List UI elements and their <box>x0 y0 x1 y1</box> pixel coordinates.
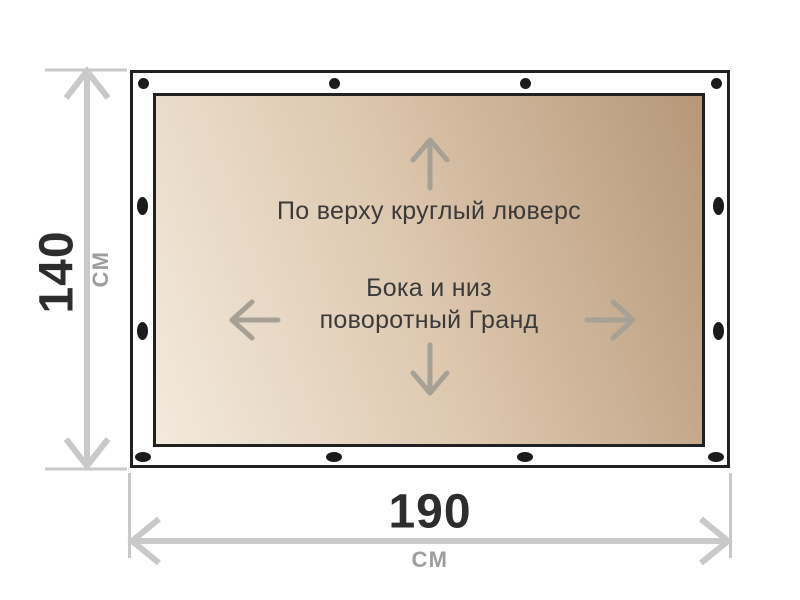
banner-fabric: По верху круглый люверс Бока и низ повор… <box>153 93 705 447</box>
grommet-dot-icon <box>326 452 342 462</box>
height-unit: СМ <box>88 251 114 288</box>
arrow-right-icon <box>583 298 639 342</box>
top-fastening-note: По верху круглый люверс <box>156 197 702 225</box>
height-value: 140 <box>30 230 85 313</box>
grommet-dot-icon <box>138 78 149 89</box>
banner-outline: По верху круглый люверс Бока и низ повор… <box>130 70 730 468</box>
grommet-dot-icon <box>329 78 340 89</box>
grommet-dot-icon <box>137 197 148 215</box>
arrow-down-icon <box>408 341 452 397</box>
grommet-dot-icon <box>520 78 531 89</box>
width-value: 190 <box>388 485 471 540</box>
banner-dimension-diagram: 140 СМ По верху круглый люверс <box>0 0 800 600</box>
grommet-dot-icon <box>137 322 148 340</box>
grommet-dot-icon <box>713 197 724 215</box>
grommet-dot-icon <box>711 78 722 89</box>
grommet-dot-icon <box>135 452 151 462</box>
grommet-dot-icon <box>713 322 724 340</box>
grommet-dot-icon <box>517 452 533 462</box>
grommet-dot-icon <box>708 452 724 462</box>
width-unit: СМ <box>412 547 449 573</box>
arrow-left-icon <box>226 298 282 342</box>
arrow-up-icon <box>408 136 452 192</box>
